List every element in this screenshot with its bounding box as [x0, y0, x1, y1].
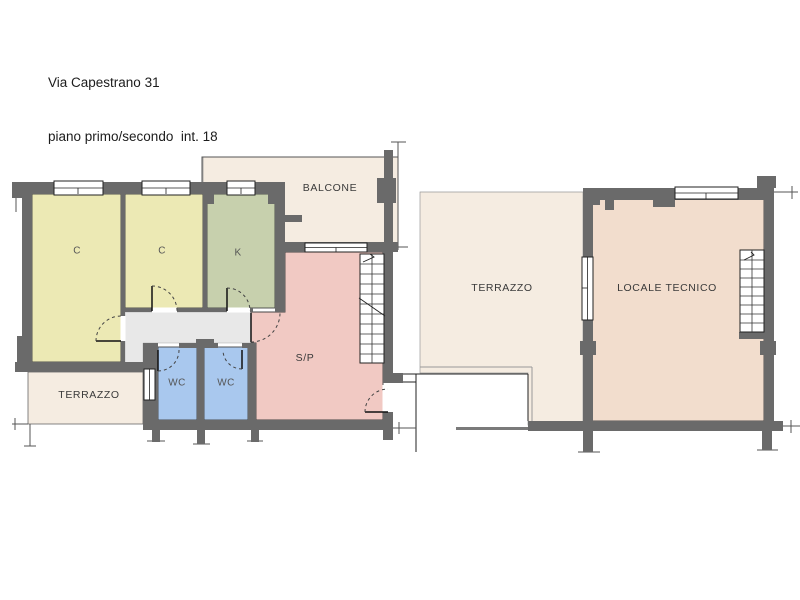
room-label-terrazzo-right: TERRAZZO	[471, 282, 532, 294]
wall-stub	[583, 431, 593, 452]
wall-pillar	[17, 336, 32, 362]
wall-pillar	[586, 193, 600, 205]
wall-stub	[152, 430, 160, 442]
wall-pillar	[268, 194, 275, 204]
terrazzo-inner-rail	[420, 367, 532, 421]
window	[227, 181, 255, 195]
wall-pillar	[757, 176, 776, 188]
wall-stub	[762, 431, 772, 450]
window	[305, 243, 367, 252]
room-locale-tecnico-floor	[592, 199, 764, 421]
wall-pillar	[196, 339, 214, 348]
wall-segment	[383, 412, 393, 440]
room-c1-floor	[32, 194, 121, 362]
window	[54, 181, 103, 195]
window	[144, 369, 155, 400]
wall-segment	[528, 421, 783, 431]
room-label-sp: S/P	[296, 352, 315, 364]
wall-segment	[12, 182, 22, 198]
wall-segment	[242, 343, 256, 348]
wall-stub	[197, 430, 205, 444]
wall-pillar	[605, 198, 614, 210]
room-label-wc2: WC	[217, 378, 234, 389]
wall-segment	[197, 348, 204, 420]
wall-pillar	[760, 341, 776, 355]
wall-stub	[283, 215, 302, 222]
wall-stub	[383, 373, 403, 383]
room-label-c2: C	[158, 246, 166, 257]
window	[582, 257, 593, 320]
terrazzo-notch-outline	[403, 374, 528, 452]
wall-segment	[15, 362, 143, 372]
wall-segment	[248, 348, 256, 420]
wall-stub	[653, 198, 675, 207]
wall-segment	[143, 420, 386, 430]
door-opening	[152, 308, 177, 313]
door-opening	[227, 308, 250, 313]
window	[142, 181, 190, 195]
room-label-wc1: WC	[168, 378, 185, 389]
staircase-locale-tecnico	[740, 250, 764, 332]
wall-pillar	[580, 341, 596, 355]
wall-segment	[203, 194, 207, 308]
room-label-locale-tecnico: LOCALE TECNICO	[617, 282, 717, 294]
door-opening	[121, 316, 126, 341]
floorplan-drawing	[0, 0, 800, 600]
wall-pillar	[377, 178, 396, 203]
wall-stub	[739, 332, 764, 339]
wall-segment	[456, 427, 528, 430]
room-terrazzo-right-floor	[420, 192, 583, 425]
wall-stub	[251, 430, 259, 442]
room-label-c1: C	[73, 246, 81, 257]
room-label-k: K	[234, 248, 241, 259]
wall-segment	[764, 188, 774, 421]
window	[675, 187, 738, 199]
wall-pillar	[207, 194, 214, 204]
room-label-balcone: BALCONE	[303, 182, 357, 194]
floorplan-canvas: Via Capestrano 31 piano primo/secondo in…	[0, 0, 800, 600]
room-label-terrazzo-left: TERRAZZO	[58, 389, 119, 401]
staircase-sp	[359, 254, 385, 363]
